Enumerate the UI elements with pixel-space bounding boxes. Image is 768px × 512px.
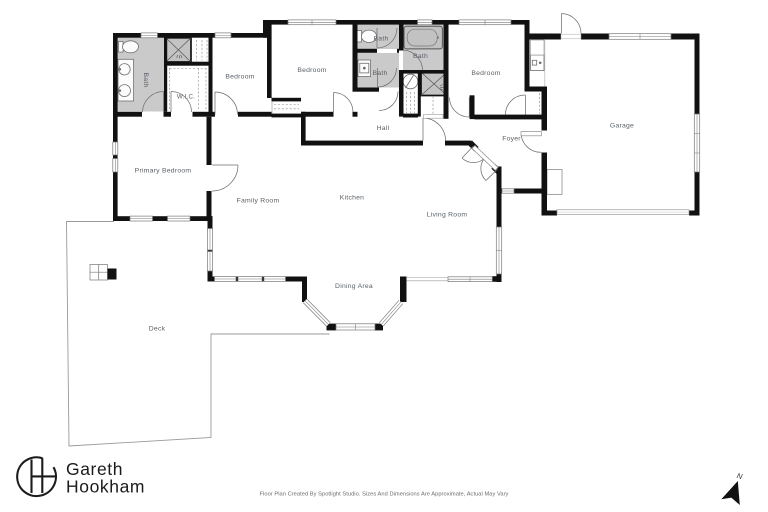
svg-text:Bedroom: Bedroom xyxy=(297,67,326,74)
svg-text:Bath: Bath xyxy=(413,53,428,60)
svg-text:Bath: Bath xyxy=(373,70,388,77)
svg-text:W.I.C.: W.I.C. xyxy=(177,94,195,101)
svg-text:Hall: Hall xyxy=(377,125,390,132)
svg-text:Hookham: Hookham xyxy=(66,476,145,496)
svg-text:Foyer: Foyer xyxy=(502,136,521,143)
svg-text:Deck: Deck xyxy=(149,326,166,333)
svg-text:Dining Area: Dining Area xyxy=(335,283,373,290)
svg-text:Bath: Bath xyxy=(142,73,149,88)
svg-text:Living Room: Living Room xyxy=(427,212,468,219)
svg-text:Kitchen: Kitchen xyxy=(340,195,364,202)
svg-text:Primary Bedroom: Primary Bedroom xyxy=(135,168,192,175)
svg-text:Bath: Bath xyxy=(374,36,389,43)
svg-text:Bedroom: Bedroom xyxy=(225,74,254,81)
svg-text:Floor Plan Created By Spotligh: Floor Plan Created By Spotlight Studio. … xyxy=(260,492,509,498)
svg-text:Bedroom: Bedroom xyxy=(471,70,500,77)
svg-text:Family Room: Family Room xyxy=(237,198,280,205)
svg-text:Garage: Garage xyxy=(610,123,634,130)
